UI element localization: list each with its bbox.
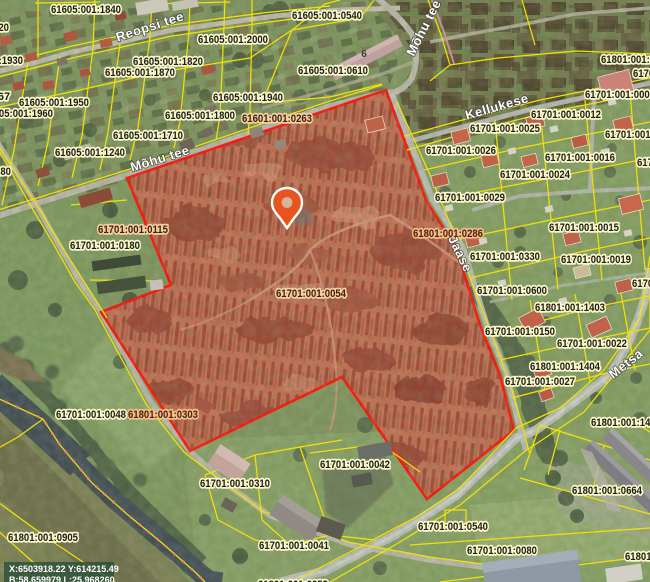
svg-text:61701:001:0016: 61701:001:0016 [545,152,615,164]
svg-text:61701:001:0021: 61701:001:0021 [632,278,650,290]
svg-text:61701:001:0540: 61701:001:0540 [418,521,488,533]
svg-text:61701:001:0600: 61701:001:0600 [477,285,547,297]
svg-text:61801:001:0012: 61801:001:0012 [601,54,650,66]
svg-text:61701:001:0041: 61701:001:0041 [259,540,329,552]
svg-text:61605:001:1940: 61605:001:1940 [213,92,283,104]
svg-text:61605:001:1280: 61605:001:1280 [0,166,11,178]
svg-text:61801:001:1403: 61801:001:1403 [535,302,605,314]
svg-text:B:58.659979 L:25.968260: B:58.659979 L:25.968260 [9,575,115,582]
svg-text:61701:001:0115: 61701:001:0115 [98,224,168,236]
svg-text:61701:001:0048: 61701:001:0048 [56,409,126,421]
svg-text:61605:001:1800: 61605:001:1800 [165,110,235,122]
svg-text:61701:001:0014: 61701:001:0014 [605,129,650,141]
svg-text:61605:001:0610: 61605:001:0610 [298,65,368,77]
svg-text:61605:001:1870: 61605:001:1870 [105,67,175,79]
svg-text:61701:001:0080: 61701:001:0080 [467,545,537,557]
svg-text:6: 6 [361,49,367,60]
svg-text:61605:001:0540: 61605:001:0540 [292,10,362,22]
svg-text:61701:001:0024: 61701:001:0024 [500,169,571,181]
svg-text:61801:001:1421: 61801:001:1421 [591,417,650,429]
svg-text:61801:001:0664: 61801:001:0664 [572,485,643,497]
svg-text:61701:001:0007: 61701:001:0007 [633,68,650,80]
svg-text:61605:001:1930: 61605:001:1930 [0,55,23,67]
svg-text:61701:001:0042: 61701:001:0042 [320,459,390,471]
svg-text:61605:001:2000: 61605:001:2000 [198,34,268,46]
svg-text:61701:001:0012: 61701:001:0012 [531,109,601,121]
svg-text:67: 67 [0,91,10,103]
svg-text:61701:001:0310: 61701:001:0310 [200,478,270,490]
svg-text:61701:001:0027: 61701:001:0027 [505,376,575,388]
svg-text:61701:001:0025: 61701:001:0025 [470,123,540,135]
svg-text:61801:001:0912: 61801:001:0912 [625,551,650,563]
svg-text:61605:001:1240: 61605:001:1240 [55,147,125,159]
svg-text:61701:001:0150: 61701:001:0150 [485,326,555,338]
svg-text:61701:001:0019: 61701:001:0019 [561,254,631,266]
svg-text:61701:001:0026: 61701:001:0026 [426,145,496,157]
svg-text:61701:001:0180: 61701:001:0180 [70,240,140,252]
svg-text:61605:001:1840: 61605:001:1840 [51,4,121,16]
svg-text:61801:001:0905: 61801:001:0905 [8,532,78,544]
svg-text:61605:001:0120: 61605:001:0120 [0,22,9,34]
svg-text:61701:001:0013: 61701:001:0013 [637,157,650,169]
svg-text:61701:001:0015: 61701:001:0015 [549,222,619,234]
svg-text:61601:001:0263: 61601:001:0263 [242,113,312,125]
svg-text:61801:001:0303: 61801:001:0303 [128,409,198,421]
svg-text:61801:001:1404: 61801:001:1404 [530,361,601,373]
svg-text:61605:001:1710: 61605:001:1710 [113,130,183,142]
svg-text:61701:001:0330: 61701:001:0330 [470,251,540,263]
svg-text:61701:001:0022: 61701:001:0022 [557,338,627,350]
svg-text:61701:001:0054: 61701:001:0054 [276,288,347,300]
svg-text:X:6503918.22 Y:614215.49: X:6503918.22 Y:614215.49 [9,564,119,574]
svg-text:61605:001:1960: 61605:001:1960 [0,108,53,120]
svg-text:61701:001:0009: 61701:001:0009 [585,89,650,101]
svg-text:61701:001:0029: 61701:001:0029 [435,192,505,204]
